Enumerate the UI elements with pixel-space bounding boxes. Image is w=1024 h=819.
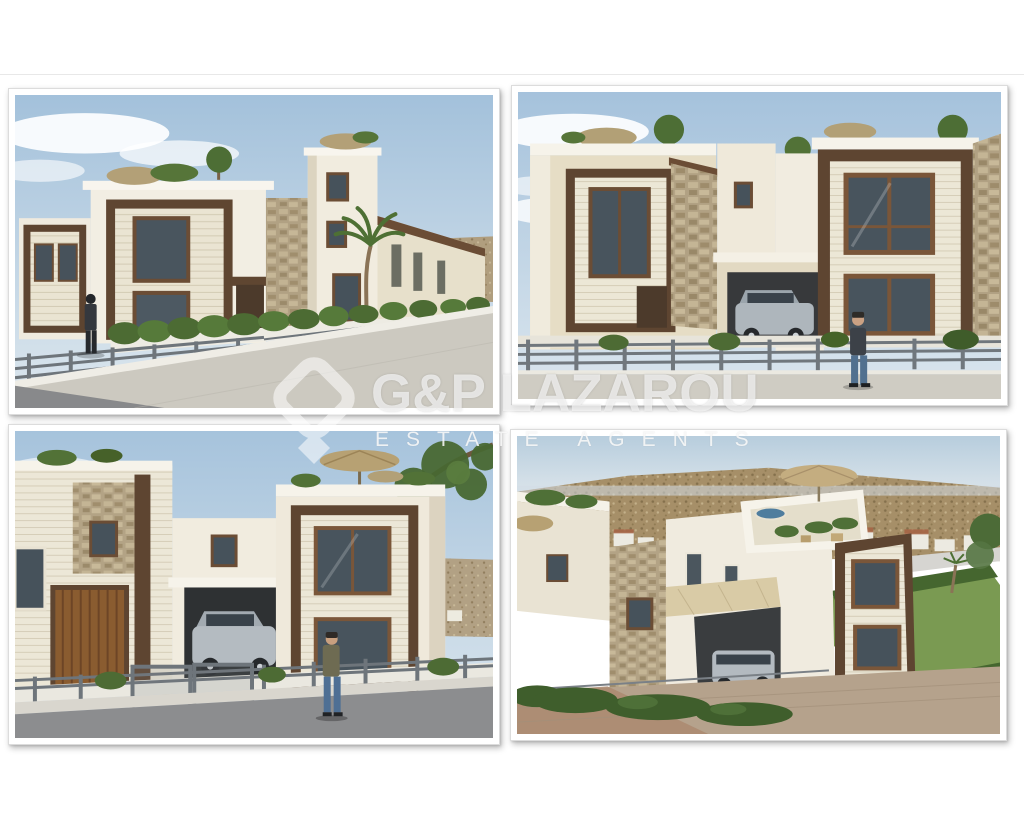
photo-bottom-right — [510, 429, 1007, 741]
render-aerial-villa-illustration — [517, 436, 1000, 734]
right-villa — [276, 450, 445, 691]
right-wing — [835, 533, 916, 690]
render-two-villas-illustration — [518, 92, 1001, 399]
left-building — [15, 449, 172, 695]
photo-top-right — [511, 85, 1008, 406]
neighbor-house — [517, 490, 610, 621]
right-villa — [812, 115, 1001, 348]
top-divider — [0, 74, 1024, 75]
photo-collage-page: G&P LAZAROU ESTATE AGENTS — [0, 0, 1024, 819]
photo-top-left — [8, 88, 500, 415]
render-street-corner-illustration — [15, 95, 493, 408]
render-garage-villa-illustration — [15, 431, 493, 738]
carport-and-car — [713, 137, 830, 352]
sidewalk — [518, 370, 1001, 399]
photo-bottom-left — [8, 424, 500, 745]
left-villa — [530, 115, 719, 350]
